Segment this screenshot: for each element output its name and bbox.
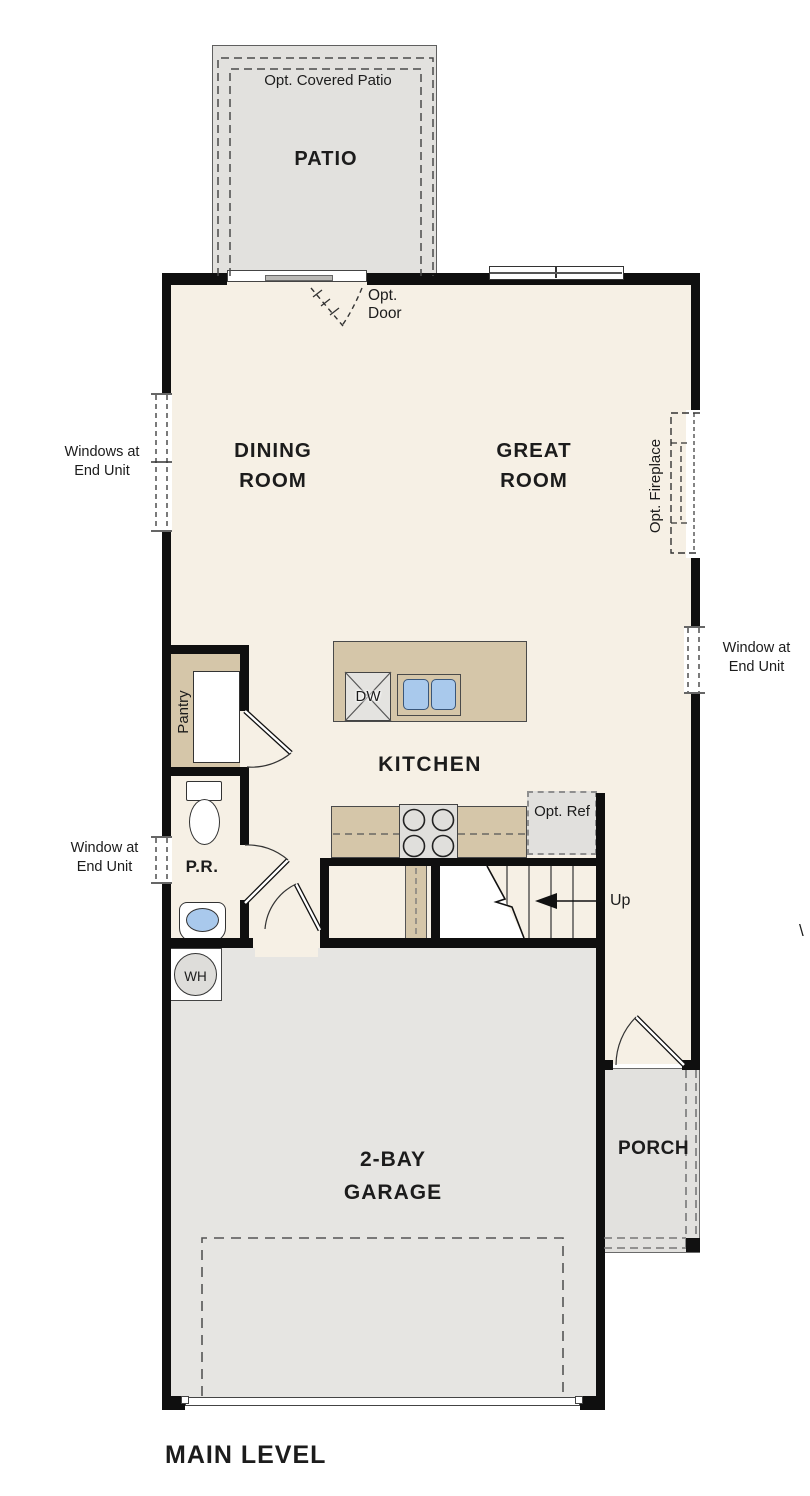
sink-basin-left: [403, 679, 429, 710]
end-unit-window-gap-lower: [151, 836, 172, 884]
stair-chase-wall: [405, 866, 427, 938]
pantry-label: Pantry: [175, 672, 195, 752]
dishwasher-label: DW: [345, 688, 391, 706]
window-label-clipped-fragment: \: [799, 922, 810, 940]
patio-slider-panel: [265, 275, 333, 281]
garage-door-end-left: [181, 1396, 189, 1404]
porch-label: PORCH: [606, 1138, 701, 1160]
sheet-title: MAIN LEVEL: [165, 1441, 425, 1470]
optional-refrigerator-box: [527, 791, 597, 855]
porch-area: [603, 1068, 700, 1253]
opt-ref-label: Opt. Ref: [532, 802, 592, 822]
powder-room-label: P.R.: [172, 857, 232, 877]
wall-garage-right: [596, 793, 605, 1410]
great-room-label: GREAT ROOM: [474, 436, 594, 496]
window-at-end-unit-right-label: Window at End Unit: [709, 639, 804, 677]
wall-entry-bottom-right: [682, 1060, 700, 1070]
opt-fireplace-label: Opt. Fireplace: [647, 416, 667, 556]
water-heater-label: WH: [174, 968, 217, 986]
toilet-tank: [186, 781, 222, 801]
great-room-window: [489, 266, 624, 280]
wall-pantry-top: [162, 645, 248, 654]
end-unit-windows-gap-upper: [151, 393, 172, 532]
windows-at-end-unit-label: Windows at End Unit: [52, 443, 152, 481]
garage-label: 2-BAY GARAGE: [313, 1143, 473, 1209]
range-stove: [399, 804, 458, 861]
up-label: Up: [610, 892, 642, 910]
end-unit-window-gap-right: [684, 626, 705, 694]
wall-pantry-right: [240, 645, 249, 711]
fireplace-wall-gap: [686, 410, 704, 558]
kitchen-label: KITCHEN: [355, 753, 505, 777]
wall-top-left: [162, 273, 227, 285]
wall-closet-left: [320, 858, 329, 948]
wall-pantry-pr-divider: [162, 767, 248, 776]
wall-garage-top-right: [320, 938, 605, 948]
wall-kitchen-counter-base: [320, 858, 605, 866]
wall-garage-bottom-right-stub: [580, 1396, 605, 1410]
great-room-window-glassline: [490, 272, 622, 274]
wall-garage-top-left: [162, 938, 253, 948]
opt-covered-patio-label: Opt. Covered Patio: [253, 72, 403, 90]
garage-door-threshold: [255, 948, 318, 957]
toilet-bowl: [189, 799, 220, 845]
garage-door: [185, 1397, 580, 1406]
opt-door-label: Opt. Door: [368, 287, 420, 322]
garage-door-end-right: [575, 1396, 583, 1404]
pantry-shelf-inset: [193, 671, 240, 763]
pr-sink-basin: [186, 908, 219, 932]
wall-entry-bottom-left: [605, 1060, 613, 1070]
floorplan-sheet: PATIO Opt. Covered Patio Opt. Door DININ…: [0, 0, 810, 1496]
patio-label: PATIO: [276, 148, 376, 171]
wall-pr-right-upper: [240, 767, 249, 845]
dining-room-label: DINING ROOM: [213, 436, 333, 496]
sink-basin-right: [431, 679, 456, 710]
wall-stair-left: [431, 866, 440, 938]
window-at-end-unit-left-label: Window at End Unit: [57, 839, 152, 877]
